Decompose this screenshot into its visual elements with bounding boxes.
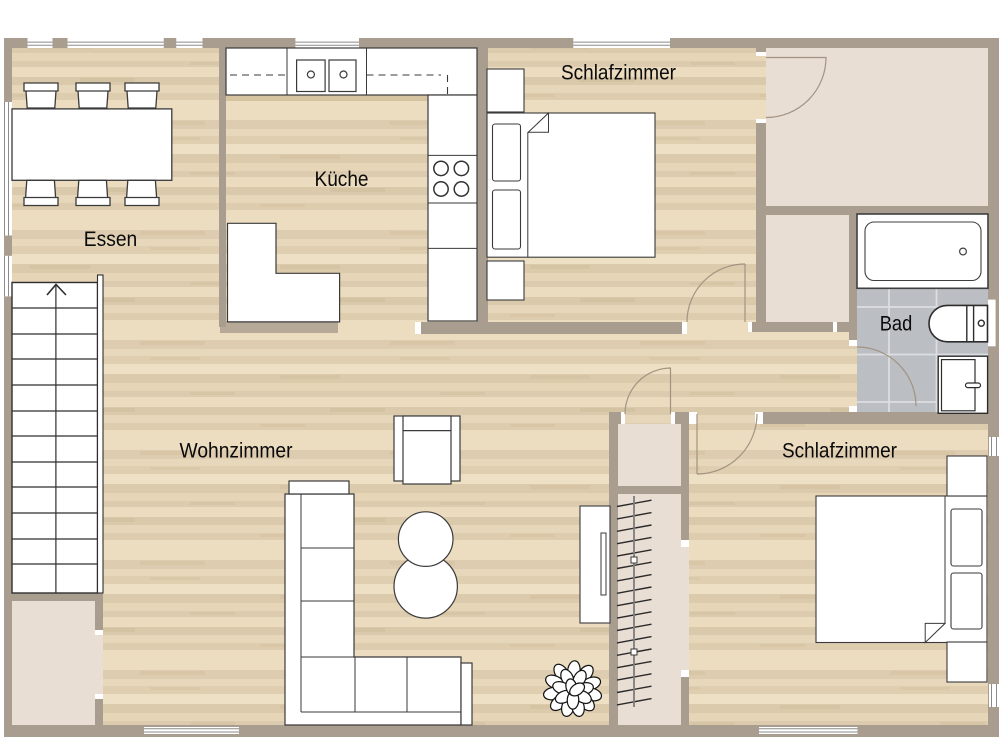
svg-text:Wohnzimmer: Wohnzimmer bbox=[180, 439, 293, 463]
svg-text:Schlafzimmer: Schlafzimmer bbox=[561, 61, 676, 85]
svg-text:Essen: Essen bbox=[84, 227, 138, 251]
svg-text:Küche: Küche bbox=[315, 167, 369, 191]
svg-text:Schlafzimmer: Schlafzimmer bbox=[782, 439, 897, 463]
svg-text:Bad: Bad bbox=[880, 312, 913, 336]
